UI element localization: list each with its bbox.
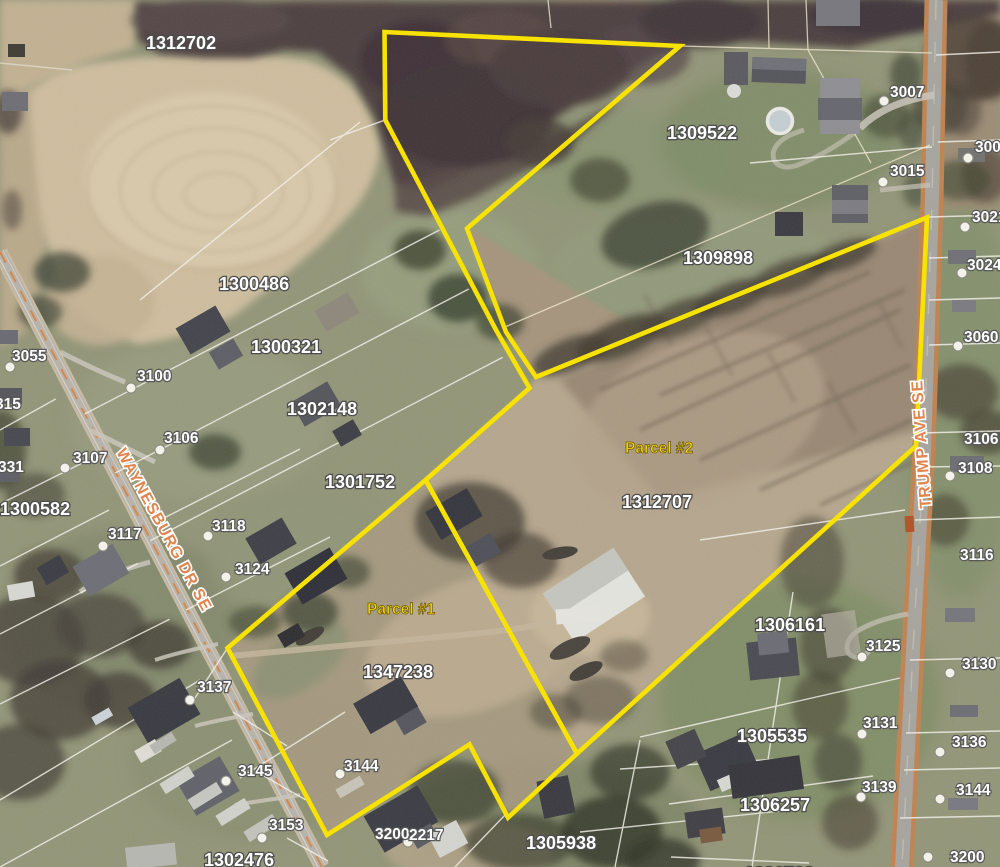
svg-text:3130: 3130 [962,656,996,673]
svg-text:3007: 3007 [890,84,924,101]
svg-text:315: 315 [0,396,21,413]
svg-text:Parcel #1: Parcel #1 [367,601,435,618]
svg-text:1305938: 1305938 [526,833,596,853]
svg-text:3015: 3015 [890,163,925,180]
svg-text:3125: 3125 [866,638,901,655]
svg-text:3124: 3124 [235,561,270,578]
svg-text:3024: 3024 [967,257,1000,274]
svg-text:3106: 3106 [964,431,999,448]
svg-text:Parcel #2: Parcel #2 [625,440,693,457]
svg-text:3118: 3118 [212,518,246,535]
svg-text:1306257: 1306257 [740,795,810,815]
svg-text:3100: 3100 [137,368,171,385]
svg-text:1302148: 1302148 [287,399,357,419]
svg-text:3137: 3137 [197,679,231,696]
svg-text:1347238: 1347238 [363,662,433,682]
svg-text:3060: 3060 [964,329,998,346]
svg-text:3145: 3145 [238,763,273,780]
svg-text:3144: 3144 [956,782,991,799]
svg-text:3139: 3139 [862,779,897,796]
svg-text:3106: 3106 [164,430,199,447]
svg-text:3108: 3108 [958,460,993,477]
svg-text:1312707: 1312707 [622,492,692,512]
svg-text:3116: 3116 [960,547,994,564]
svg-text:3144: 3144 [344,758,379,775]
svg-text:2217: 2217 [409,827,443,844]
svg-text:3131: 3131 [863,715,898,732]
svg-text:1309898: 1309898 [683,248,753,268]
svg-text:1300582: 1300582 [0,499,70,519]
svg-text:1302476: 1302476 [204,850,274,867]
svg-text:3200: 3200 [950,849,984,866]
svg-text:331: 331 [0,459,24,476]
svg-text:1301752: 1301752 [325,472,395,492]
svg-text:1300486: 1300486 [219,274,289,294]
svg-text:1309522: 1309522 [667,123,737,143]
svg-text:3136: 3136 [952,734,987,751]
svg-text:1306161: 1306161 [755,615,825,635]
svg-text:3153: 3153 [269,817,304,834]
svg-text:3006: 3006 [975,139,1000,156]
svg-text:1300321: 1300321 [251,337,321,357]
svg-text:3107: 3107 [73,450,107,467]
svg-text:1305535: 1305535 [737,726,807,746]
svg-text:3200: 3200 [375,826,409,843]
svg-text:3021: 3021 [972,209,1000,226]
svg-text:1312702: 1312702 [146,33,216,53]
svg-text:3055: 3055 [12,348,47,365]
svg-text:3117: 3117 [108,526,142,543]
